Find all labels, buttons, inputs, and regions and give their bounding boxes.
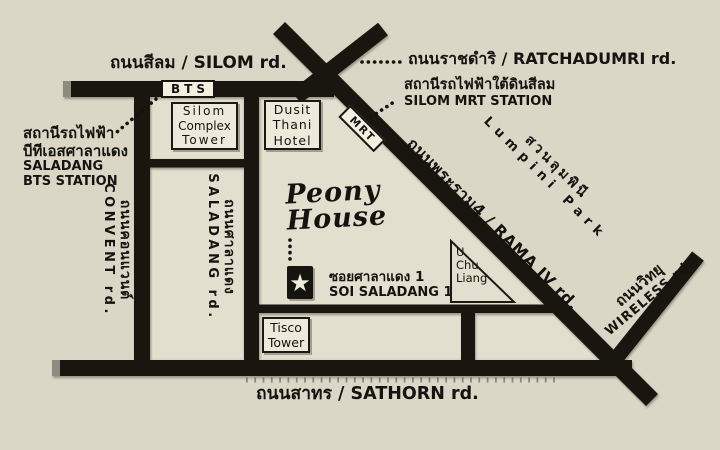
convent-road [134,95,150,367]
saladang-road [244,95,259,365]
mrt-leader-dots [371,100,397,117]
saladang-bts-thai-2: บีทีเอสศาลาแดง [23,142,128,160]
location-star-icon: ★ [289,269,311,297]
dusit-thani-hotel-building: Dusit Thani Hotel [264,100,321,150]
silom-complex-line1: Silom [173,104,236,119]
dusit-thani-line1: Dusit [266,102,319,117]
block-tisco [262,316,599,358]
silom-road-end-cap [63,81,71,97]
dusit-thani-line2: Thani [266,117,319,132]
tisco-tower-building: Tisco Tower [262,317,310,353]
convent-road-thai: ถนนคอนแวนต์ [116,183,133,317]
tisco-line1: Tisco [264,320,308,335]
map: ถนนสีลม / SILOM rd. ถนนราชดำริ / RATCHAD… [0,0,720,450]
saladang-road-english: SALADANG rd. [205,173,221,320]
saladang-bts-station-label: สถานีรถไฟฟ้า บีทีเอสศาลาแดง SALADANG BTS… [23,124,128,190]
destination-marker: ★ [287,266,313,299]
bts-station-badge: BTS [161,80,215,98]
silom-complex-tower-building: Silom Complex Tower [171,102,238,150]
u-chu-liang-line3: Liang [456,272,487,285]
silom-complex-line2: Complex [173,119,236,134]
silom-mrt-station-label: สถานีรถไฟฟ้าใต้ดินสีลม SILOM MRT STATION [404,77,555,110]
soi-saladang1-label: ซอยศาลาแดง 1 SOI SALADANG 1 [329,269,453,301]
saladang-road-thai: ถนนศาลาแดง [220,173,237,320]
dusit-thani-line3: Hotel [266,133,319,148]
connector-road [461,308,475,365]
saladang-road-label: ถนนศาลาแดง SALADANG rd. [205,173,237,320]
peony-house-line2: House [286,203,388,234]
soi-saladang1-english: SOI SALADANG 1 [329,285,453,301]
silom-road-label: ถนนสีลม / SILOM rd. [110,53,287,73]
sathorn-road-end-cap [52,360,60,376]
peony-house-label: Peony House [285,177,388,233]
sathorn-road-label: ถนนสาทร / SATHORN rd. [256,384,479,405]
saladang-bts-english-1: SALADANG [23,160,128,175]
silom-complex-line3: Tower [173,133,236,148]
soi-saladang1-road [251,305,553,314]
sathorn-road [52,360,632,376]
saladang-bts-thai-1: สถานีรถไฟฟ้า [23,124,128,142]
u-chu-liang-building-label: U Chu Liang [456,246,487,286]
convent-road-english: CONVENT rd. [101,183,117,317]
soi-saladang1-thai: ซอยศาลาแดง 1 [329,269,453,285]
silom-mrt-station-thai: สถานีรถไฟฟ้าใต้ดินสีลม [404,77,555,94]
cross-street [142,159,246,168]
silom-mrt-station-english: SILOM MRT STATION [404,94,555,110]
ratchadumri-road-label: ถนนราชดำริ / RATCHADUMRI rd. [408,49,676,68]
convent-road-label: ถนนคอนแวนต์ CONVENT rd. [101,183,133,317]
tisco-line2: Tower [264,335,308,350]
